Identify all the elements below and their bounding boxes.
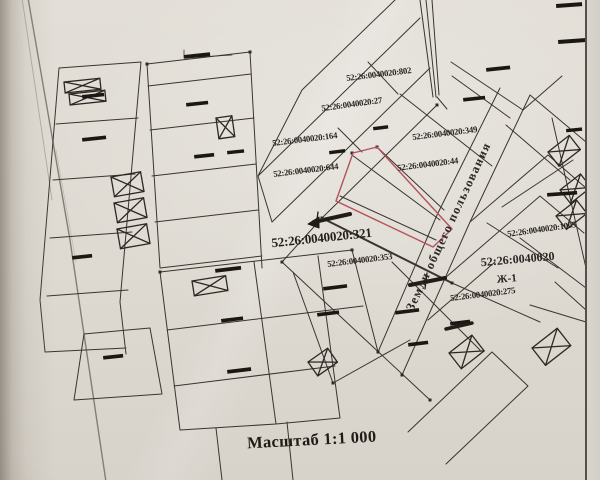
- building-icon: [117, 224, 150, 249]
- label-parcel-349: 52:26:0040020:349: [412, 124, 479, 142]
- redaction-bar: [82, 93, 104, 99]
- building-icon: [449, 335, 484, 369]
- building-icon: [192, 276, 228, 296]
- label-parcel-321: 52:26:0040020:321: [271, 225, 373, 250]
- building-icon: [548, 135, 580, 166]
- redaction-bar: [194, 153, 214, 159]
- adjacent-page-edge: [585, 0, 600, 480]
- building-icon: [111, 172, 144, 197]
- redaction-bar: [215, 266, 241, 273]
- parcel-block-middle: [147, 50, 262, 268]
- parcel-trapezoid: [74, 328, 162, 400]
- building-icon: [114, 198, 147, 223]
- redaction-bar: [227, 367, 251, 374]
- redaction-bar: [323, 284, 347, 290]
- label-parcel-802: 52:26:0040020:802: [346, 65, 413, 83]
- page-edge-lines: [22, 0, 106, 480]
- parcel-block-centre-right: [258, 0, 540, 400]
- redaction-bar: [227, 149, 244, 154]
- label-parcel-44: 52:26:0040020:44: [397, 155, 460, 172]
- label-parcel-164: 52:26:0040020:164: [272, 130, 339, 148]
- building-icon: [308, 348, 337, 376]
- redaction-bar: [408, 341, 428, 347]
- redaction-bar: [82, 135, 106, 141]
- label-scale: Масштаб 1:1 000: [247, 427, 377, 453]
- label-parcel-644: 52:26:0040020:644: [273, 161, 340, 179]
- label-parcel-275: 52:26:0040020:275: [450, 285, 517, 303]
- redaction-bar: [463, 96, 485, 102]
- redacted-labels: [72, 2, 588, 374]
- buildings: [64, 78, 591, 376]
- label-parcel-27: 52:26:0040020:27: [321, 95, 384, 114]
- cadastral-plan-photo: 52:26:0040020:802 52:26:0040020:27 52:26…: [0, 0, 600, 480]
- label-parcel-353: 52:26:0040020:353: [327, 251, 394, 269]
- label-zone: Ж-1: [496, 272, 517, 286]
- cadastral-map-svg: 52:26:0040020:802 52:26:0040020:27 52:26…: [0, 0, 600, 480]
- redaction-bar: [486, 65, 510, 71]
- map-labels: 52:26:0040020:802 52:26:0040020:27 52:26…: [247, 65, 578, 452]
- redaction-bar: [556, 2, 582, 8]
- redaction-bar: [373, 125, 388, 130]
- redaction-bar: [186, 101, 208, 107]
- label-quarter: 52:26:0040020: [480, 249, 555, 269]
- redaction-bar: [103, 354, 123, 360]
- redaction-bar: [558, 38, 588, 44]
- building-icon: [532, 328, 571, 365]
- building-icon: [216, 116, 235, 139]
- label-parcel-1005: 52:26:0040020:1005: [507, 219, 578, 239]
